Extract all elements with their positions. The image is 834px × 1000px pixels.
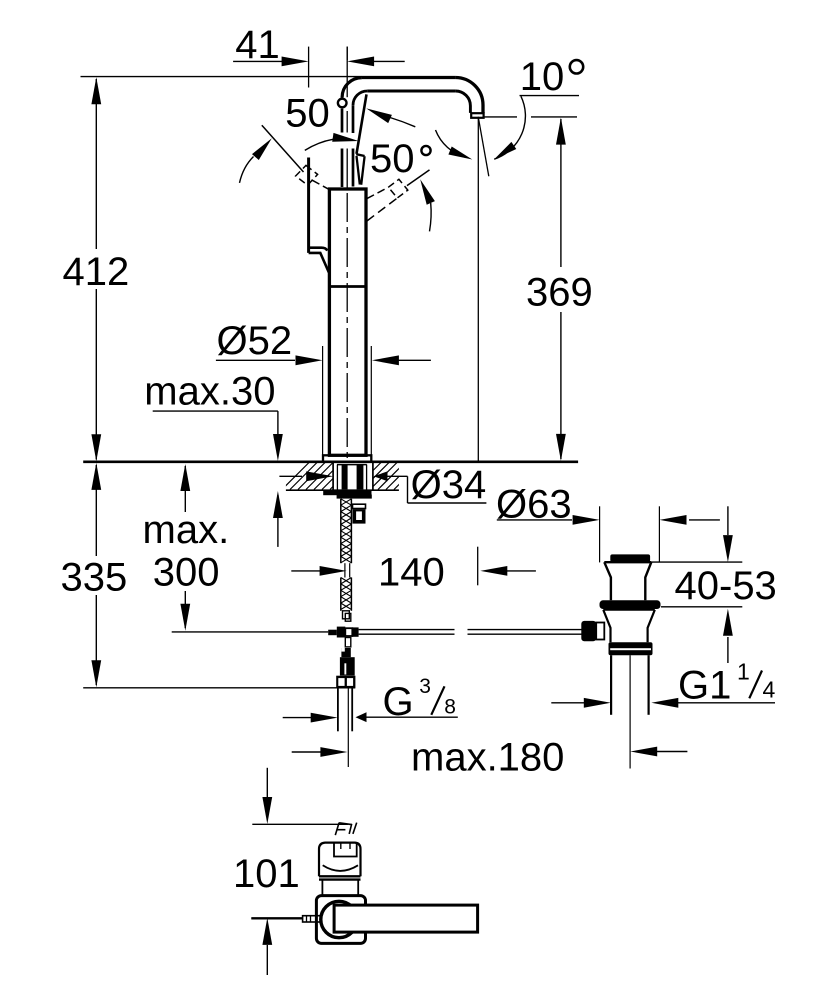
svg-text:max.180: max.180	[411, 736, 564, 780]
svg-text:10: 10	[520, 55, 565, 99]
svg-text:Ø52: Ø52	[217, 319, 293, 363]
svg-text:4: 4	[763, 677, 776, 703]
svg-text:140: 140	[378, 550, 445, 594]
svg-text:3: 3	[419, 675, 431, 698]
svg-text:50: 50	[370, 137, 415, 181]
svg-text:369: 369	[526, 270, 593, 314]
svg-text:G1: G1	[678, 664, 731, 708]
svg-text:8: 8	[444, 696, 456, 719]
svg-text:max.30: max.30	[144, 370, 275, 414]
svg-text:412: 412	[63, 250, 130, 294]
svg-text:Ø34: Ø34	[411, 463, 487, 507]
svg-text:101: 101	[233, 852, 300, 896]
svg-text:335: 335	[61, 556, 128, 600]
svg-text:300: 300	[153, 550, 220, 594]
svg-text:41: 41	[235, 23, 279, 67]
svg-text:40-53: 40-53	[675, 564, 777, 608]
svg-text:max.: max.	[143, 508, 230, 552]
svg-text:50: 50	[285, 92, 330, 136]
svg-text:1: 1	[737, 658, 750, 684]
